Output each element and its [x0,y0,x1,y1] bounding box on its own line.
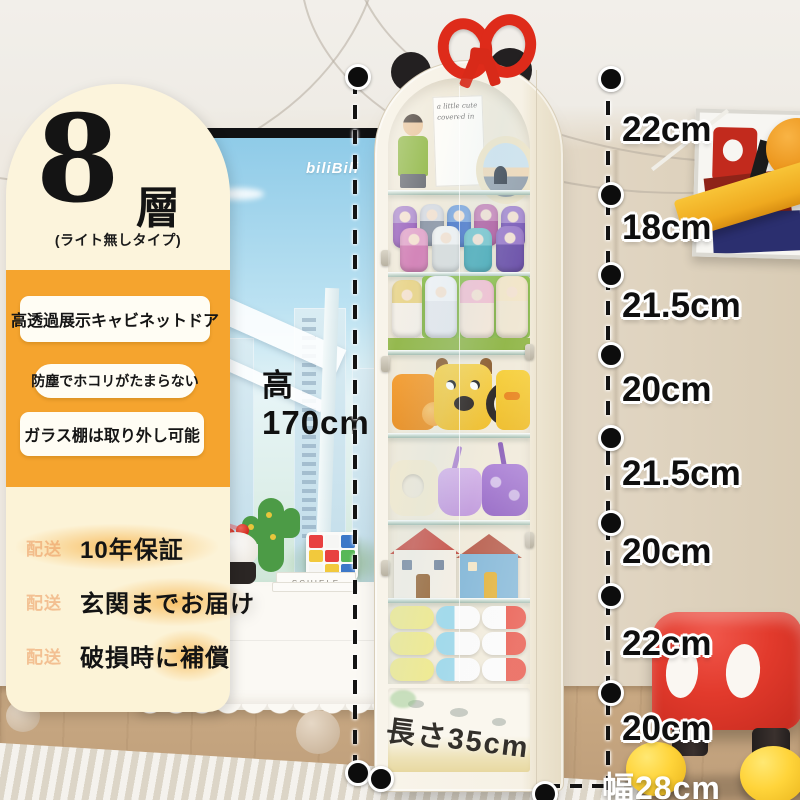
measure-dot [345,760,371,786]
height-measure-line [353,80,357,770]
dog-eye [446,380,456,390]
door-hinge [381,560,390,576]
card-text: a little cute covered in [433,96,482,128]
pack-yellow [390,658,434,681]
segment-label: 20cm [622,711,712,746]
pack-red [482,632,526,655]
red-bow [436,10,528,90]
dollhouse-door [416,574,430,598]
duck-beak [504,392,520,400]
cactus-light [270,534,276,540]
width-measure-line [548,784,610,788]
feature-pill: 防塵でホコリがたまらない [34,364,196,398]
stool-shoe [740,746,800,800]
wall-corner-shadow [612,150,620,690]
measure-dot [598,262,624,288]
stand-foot [296,710,340,754]
dog-nose [454,396,474,411]
door-hinge [381,250,390,266]
cream-mug-hole [402,474,424,498]
measure-dot [598,510,624,536]
pack-yellow [390,606,434,629]
pack-yellow [390,632,434,655]
tier-count: 8 [36,100,120,220]
feature-pill: ガラス棚は取り外し可能 [20,412,204,456]
measure-dot [598,425,624,451]
tv-logo: biliBili [306,160,359,177]
product-scene: biliBili [0,0,800,800]
cabinet-side-seam [536,70,537,784]
door-hinge [525,532,534,548]
measure-dot [598,182,624,208]
glass-door-seam [459,86,460,682]
toy-figure [464,228,492,272]
service-label: 破損時に補償 [80,638,230,673]
toy-figure [425,276,457,338]
measure-dot [532,781,558,800]
pack-blue [436,606,480,629]
measure-dot [598,680,624,706]
purple-mug [482,464,528,516]
delivery-stamp: 配送 [26,589,62,614]
info-panel: 8 層 (ライト無しタイプ) 高透過展示キャビネットドア 防塵でホコリがたまらな… [6,84,230,712]
segment-label: 22cm [622,626,712,661]
service-row: 配送 10年保証 [6,530,230,566]
feature-label: ガラス棚は取り外し可能 [24,422,200,446]
segment-label: 20cm [622,372,712,407]
door-hinge [381,356,390,372]
measure-dot [598,66,624,92]
toy-figure-dad-head [403,114,423,136]
segment-label: 20cm [622,534,712,569]
segment-label: 21.5cm [622,288,741,323]
pack-red [482,658,526,681]
cactus-light [266,512,272,518]
width-dimension-label: 幅28cm [602,763,721,800]
measure-dot [598,342,624,368]
book [272,582,358,592]
toy-figure [496,276,528,338]
service-label: 玄関までお届け [80,584,255,619]
tier-badge: 8 層 (ライト無しタイプ) [6,84,230,270]
dollhouse-door [484,572,497,598]
dollhouse-window [402,560,412,570]
pack-blue [436,632,480,655]
dollhouse-window [468,562,477,571]
segment-label: 18cm [622,210,712,245]
toy-figure-dad-legs [400,174,426,188]
toy-figure [432,226,460,272]
service-row: 配送 玄関までお届け [6,584,230,620]
measure-dot [368,766,394,792]
toy-figure [400,228,428,272]
measure-dot [345,64,371,90]
dog-eye [470,380,480,390]
toy-figure [392,280,422,338]
duck-mug [496,370,530,430]
delivery-stamp: 配送 [26,535,62,560]
lavender-mug [438,468,482,516]
tier-subtitle: (ライト無しタイプ) [6,230,230,250]
toy-figure-dad-body [398,136,428,176]
delivery-stamp: 配送 [26,643,62,668]
pack-blue [436,658,480,681]
segment-label: 21.5cm [622,456,741,491]
tier-unit: 層 [136,172,180,236]
service-label: 10年保証 [80,530,184,565]
door-hinge [525,344,534,360]
service-row: 配送 破損時に補償 [6,638,230,674]
segment-label: 22cm [622,112,712,147]
feature-label: 高透過展示キャビネットドア [11,307,219,331]
cactus-arm [282,508,300,538]
measure-dot [598,583,624,609]
frame-silhouette [494,166,507,184]
feature-pill: 高透過展示キャビネットドア [20,296,210,342]
feature-label: 防塵でホコリがたまらない [31,371,199,391]
toy-figure [460,280,494,338]
dollhouse-window [434,560,444,570]
pack-red [482,606,526,629]
drawer-print-green [390,690,416,708]
toy-figure [496,226,524,272]
